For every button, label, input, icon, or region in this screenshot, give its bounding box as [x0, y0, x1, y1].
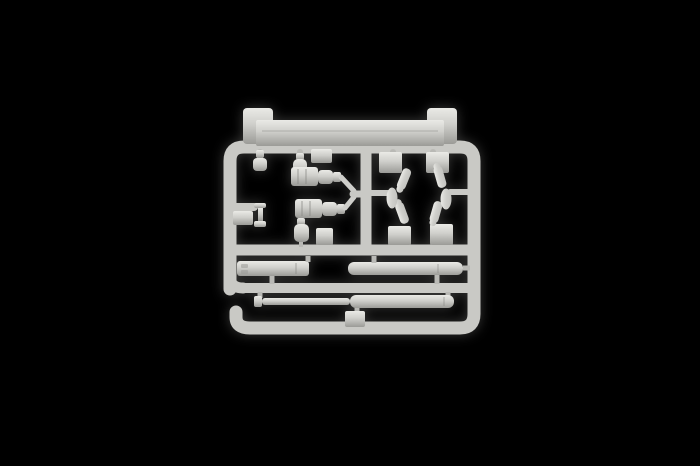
brake-cylinder — [318, 170, 333, 184]
barrel-end-cap — [254, 296, 262, 307]
pad-left — [233, 211, 253, 225]
part-rectangular-sleeve — [237, 261, 309, 276]
fitting-oval-right — [441, 189, 452, 210]
part-short-cylinder — [348, 262, 470, 275]
brake-block — [295, 199, 322, 218]
black-backdrop — [0, 0, 700, 466]
pad-top-left-section — [311, 149, 332, 163]
photo-canvas: { "image": { "type": "product-photograph… — [0, 0, 700, 466]
pad-cross-bottom-right — [430, 224, 453, 245]
brake-block — [291, 167, 318, 186]
pad-bottom-rail — [345, 311, 365, 327]
top-bar-body — [256, 120, 444, 146]
sprue-photo — [0, 0, 700, 466]
pad-cross-top-left — [379, 152, 402, 173]
barrel-thin-half — [262, 298, 350, 305]
fitting-oval-left — [387, 188, 398, 209]
pad-centre — [316, 228, 333, 245]
brake-cylinder — [322, 202, 337, 216]
pad-cross-bottom-left — [388, 226, 411, 245]
barrel-thick-half — [350, 295, 454, 308]
